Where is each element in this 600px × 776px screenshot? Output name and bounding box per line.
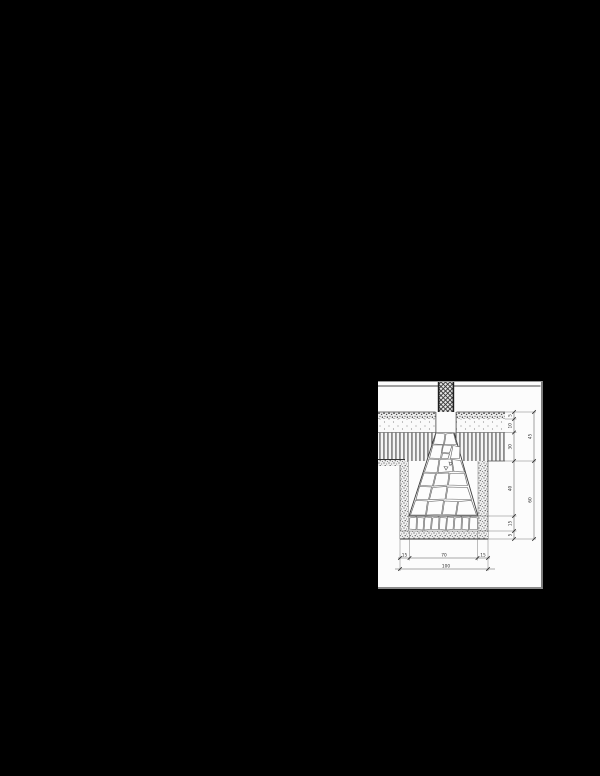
wall-section: [438, 382, 454, 412]
dim-label: 15: [402, 553, 408, 559]
dim-label: 5: [508, 533, 514, 536]
dim-label: 100: [442, 564, 450, 570]
dim-label: 40: [508, 486, 514, 492]
dimension-labels-bottom: 15 70 15 100: [402, 553, 486, 570]
dim-label: 15: [480, 553, 486, 559]
dim-label: 45: [528, 434, 534, 440]
dim-label: 70: [441, 553, 447, 559]
wall-plinth: [436, 412, 456, 433]
dim-label: 15: [508, 521, 514, 527]
foundation-detail-drawing: 5 10 30 40 15 5 45 60 15 70 15 100: [378, 382, 541, 587]
dim-label: 5: [508, 414, 514, 417]
screen-background: 5 10 30 40 15 5 45 60 15 70 15 100: [0, 0, 600, 776]
gravel-bed-layer: [400, 531, 488, 539]
dim-label: 10: [508, 423, 514, 429]
dimension-labels-right-outer: 45 60: [528, 434, 534, 503]
ground-edge-left: [378, 460, 405, 467]
dim-label: 60: [528, 497, 534, 503]
dim-label: 30: [508, 444, 514, 450]
dimension-labels-right-inner: 5 10 30 40 15 5: [508, 414, 514, 537]
stone-bed: [409, 516, 478, 531]
drawing-panel: 5 10 30 40 15 5 45 60 15 70 15 100: [378, 381, 543, 589]
